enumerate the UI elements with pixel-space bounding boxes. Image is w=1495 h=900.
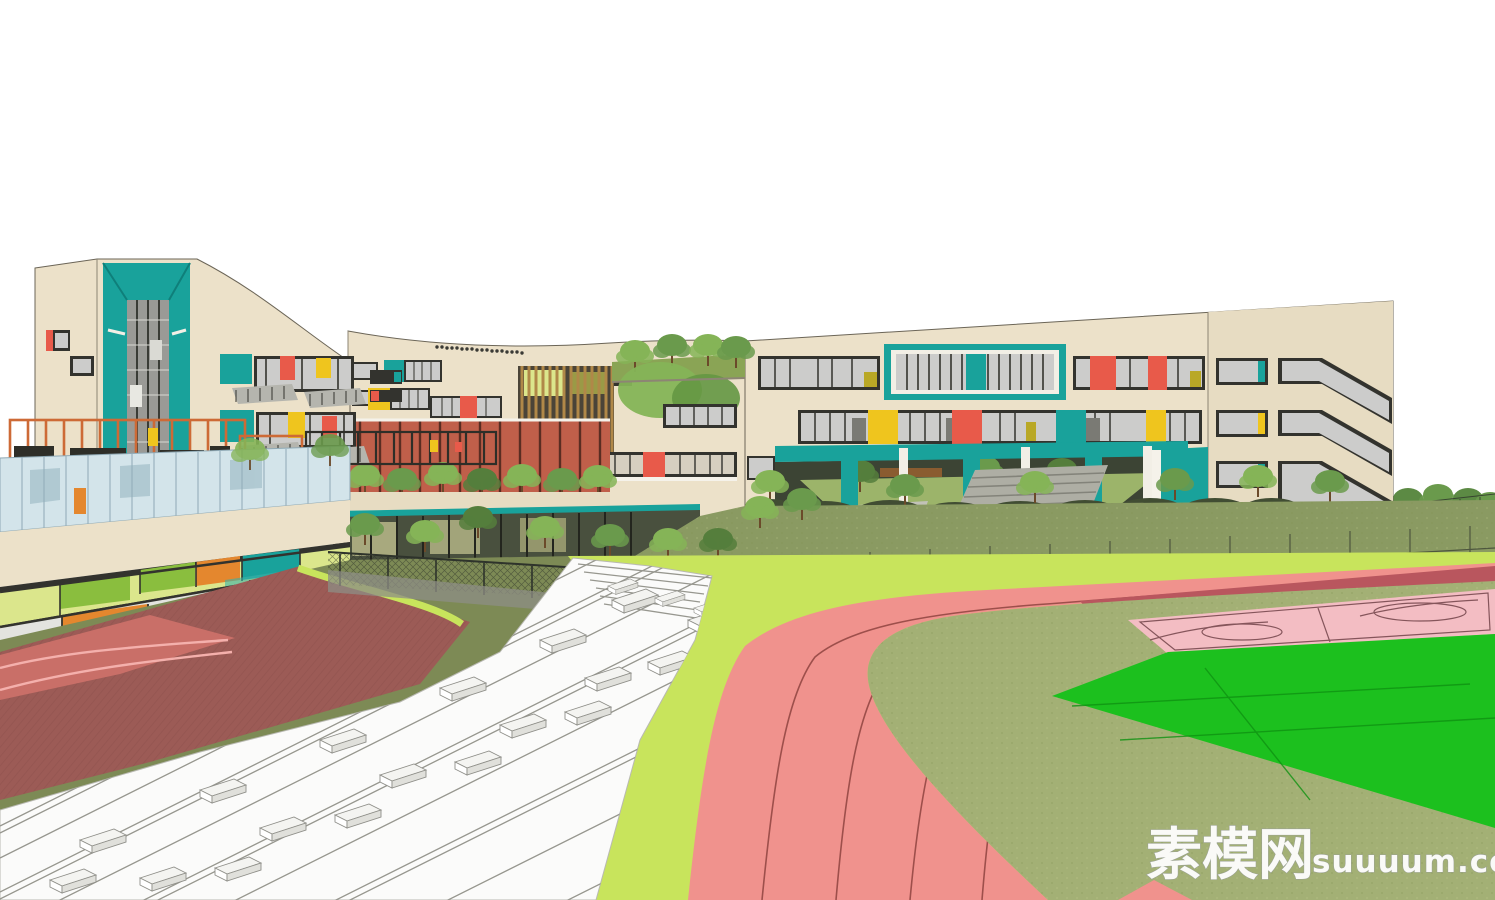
window-strip	[1073, 356, 1205, 390]
architectural-rendering: 素模网 suuuum.com	[0, 0, 1495, 900]
window-strip	[758, 356, 880, 390]
scene-canvas: 素模网 suuuum.com	[0, 0, 1495, 900]
tower	[103, 263, 190, 458]
portico-column	[841, 448, 858, 510]
terrace-level	[346, 420, 617, 518]
feature-window	[884, 344, 1066, 400]
watermark-cn: 素模网	[1146, 823, 1314, 888]
window-strip	[798, 410, 1202, 444]
watermark-en: suuuum.com	[1312, 844, 1495, 880]
terrace-planter	[74, 488, 86, 514]
